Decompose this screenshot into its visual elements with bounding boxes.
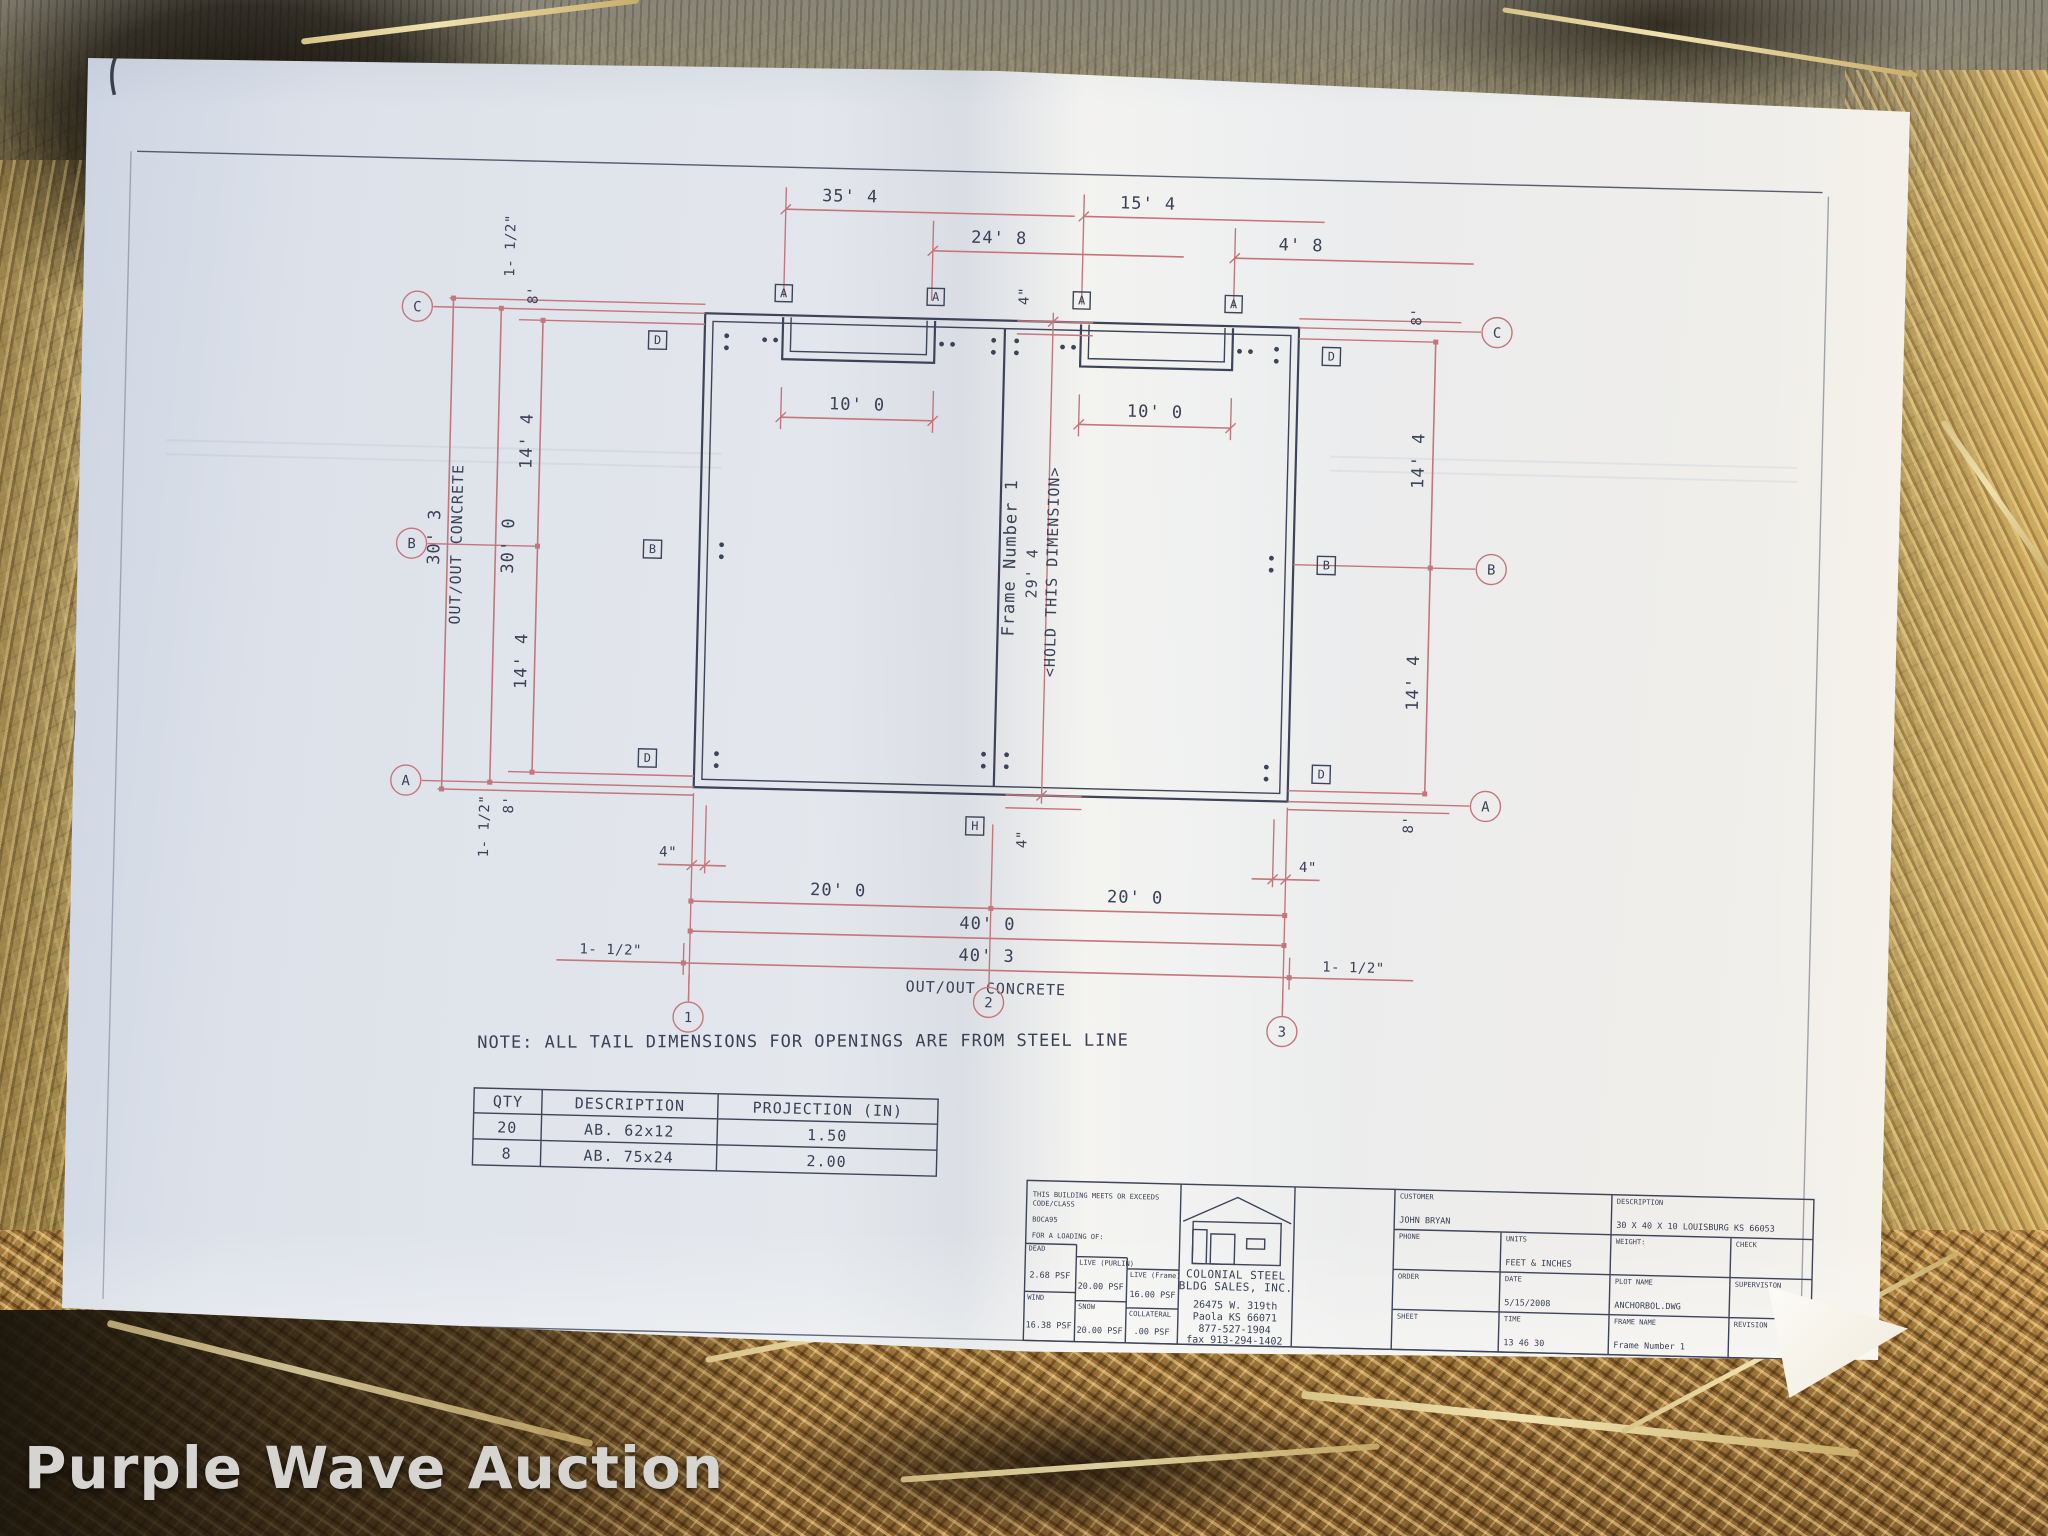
tb-phone-label: PHONE	[1399, 1232, 1420, 1241]
square-left-B: B	[649, 542, 657, 556]
right-dimensions: 8' 14' 4 14' 4 8'	[1287, 305, 1482, 835]
square-A2: A	[932, 290, 940, 304]
th-projection: PROJECTION (IN)	[752, 1099, 903, 1121]
dim-bottom-edge-right: 1- 1/2"	[1322, 960, 1385, 978]
cell-proj-1: 1.50	[807, 1126, 848, 1145]
dim-left-bay1: 14' 4	[516, 413, 537, 470]
square-left-D-top: D	[654, 333, 662, 347]
company-logo-house-icon	[1182, 1196, 1292, 1266]
cell-desc-2: AB. 75x24	[583, 1147, 674, 1167]
dim-frame-offset-top: 4"	[1017, 287, 1033, 305]
tb-time: 13 46 30	[1503, 1338, 1544, 1349]
square-A1: A	[780, 286, 788, 300]
auction-watermark: Purple Wave Auction	[24, 1434, 724, 1502]
grid-right-A: A	[1481, 799, 1490, 815]
grid-right-B: B	[1487, 562, 1496, 578]
tb-meets-2: CODE/CLASS	[1033, 1200, 1075, 1209]
dim-frame-offset-bottom: 4"	[1014, 830, 1030, 848]
dim-left-edge-bottom: 1- 1/2"	[476, 795, 494, 858]
tb-load-wind: 16.38 PSF	[1025, 1320, 1071, 1331]
tb-company-2: BLDG SALES, INC.	[1179, 1279, 1293, 1295]
frame-number-label: Frame Number 1	[998, 479, 1022, 637]
tb-check-label: CHECK	[1736, 1241, 1758, 1250]
square-right-D-bottom: D	[1317, 767, 1325, 781]
dim-bottom-offset-left: 4"	[659, 844, 677, 860]
tb-time-label: TIME	[1504, 1315, 1521, 1323]
tb-description-label: DESCRIPTION	[1617, 1198, 1664, 1207]
dim-right-bay2: 14' 4	[1403, 654, 1424, 711]
tb-plot: ANCHORBOL.DWG	[1614, 1301, 1681, 1313]
ab-schedule-table: QTY DESCRIPTION PROJECTION (IN) 20 AB. 6…	[472, 1088, 938, 1176]
bottom-dimensions: 4" 4" 20' 0 20' 0 40' 0 40' 3 1- 1/2" 1-…	[555, 790, 1417, 1020]
tb-load-dead-label: DEAD	[1028, 1244, 1045, 1252]
section-squares: A A A A D B D D B D H	[637, 281, 1342, 843]
dim-opening-left: 10' 0	[829, 394, 886, 415]
tb-sheet-label: SHEET	[1397, 1312, 1419, 1321]
title-block: THIS BUILDING MEETS OR EXCEEDS CODE/CLAS…	[1023, 1180, 1814, 1360]
tb-load-purlin-label: LIVE (PURLIN)	[1079, 1259, 1134, 1268]
tb-load-wind-label: WIND	[1027, 1293, 1044, 1301]
dim-left-end-bottom: 8'	[501, 795, 517, 813]
cell-proj-2: 2.00	[806, 1152, 847, 1171]
dim-top-4: 4' 8	[1278, 235, 1323, 256]
grid-left-B: B	[407, 536, 416, 552]
tb-units-label: UNITS	[1506, 1235, 1527, 1244]
cell-desc-1: AB. 62x12	[584, 1121, 675, 1141]
dim-left-end-top: 8'	[525, 286, 541, 304]
tb-address-2: Paola KS 66071	[1193, 1311, 1278, 1324]
dim-top-2: 24' 8	[971, 228, 1028, 249]
tb-customer-label: CUSTOMER	[1400, 1192, 1435, 1201]
tb-plot-label: PLOT NAME	[1615, 1278, 1653, 1287]
square-right-B: B	[1323, 558, 1331, 572]
dim-opening-right: 10' 0	[1127, 402, 1184, 423]
square-right-D-top: D	[1328, 349, 1336, 363]
tb-units: FEET & INCHES	[1505, 1258, 1572, 1270]
tb-customer: JOHN BRYAN	[1399, 1215, 1450, 1226]
top-dimensions: 35' 4 24' 8 15' 4 4' 8	[779, 185, 1476, 314]
tb-load-frame: 16.00 PSF	[1129, 1290, 1175, 1301]
tb-frame: Frame Number 1	[1613, 1341, 1685, 1353]
dim-right-bay1: 14' 4	[1408, 432, 1429, 489]
note-text: NOTE: ALL TAIL DIMENSIONS FOR OPENINGS A…	[477, 1031, 1129, 1053]
dim-bottom-edge-left: 1- 1/2"	[579, 941, 642, 959]
dim-left-steel: 30' 0	[498, 517, 519, 574]
grid-col-1: 1	[684, 1010, 693, 1026]
square-A3: A	[1078, 293, 1086, 307]
soil-patch	[760, 1390, 1380, 1536]
dim-bottom-offset-right: 4"	[1299, 860, 1317, 876]
square-A4: A	[1230, 297, 1238, 311]
dim-right-end-bottom: 8'	[1401, 815, 1417, 833]
tb-weight-label: WEIGHT:	[1616, 1238, 1646, 1247]
dim-bottom-concrete: 40' 3	[958, 946, 1015, 967]
cell-qty-2: 8	[501, 1145, 511, 1163]
photo-canvas: 35' 4 24' 8 15' 4 4' 8 10' 0 10' 0 4" Fr…	[0, 0, 2048, 1536]
frame-dim: 29' 4	[1022, 548, 1041, 599]
tb-fax: fax 913-294-1402	[1186, 1334, 1283, 1347]
straw-shadow-bottom-left	[0, 1310, 820, 1536]
tb-load-dead: 2.68 PSF	[1029, 1270, 1070, 1281]
tb-address-1: 26475 W. 319th	[1193, 1299, 1278, 1312]
tb-load-snow: 20.00 PSF	[1076, 1326, 1122, 1337]
grid-col-3: 3	[1277, 1024, 1286, 1040]
dim-left-edge-top: 1- 1/2"	[502, 214, 520, 277]
opening-dimensions: 10' 0 10' 0	[775, 387, 1236, 440]
tb-load-frame-label: LIVE (Frame)	[1130, 1271, 1181, 1280]
th-description: DESCRIPTION	[575, 1094, 686, 1115]
tb-load-collateral: .00 PSF	[1133, 1327, 1169, 1338]
ghost-lines	[166, 428, 1798, 494]
tb-load-snow-label: SNOW	[1078, 1303, 1096, 1311]
grid-left-C: C	[413, 299, 422, 315]
grid-col-2: 2	[984, 995, 993, 1011]
grid-left-A: A	[401, 773, 410, 789]
dim-bottom-steel: 40' 0	[959, 914, 1016, 935]
tb-loading-label: FOR A LOADING OF:	[1032, 1232, 1104, 1242]
grid-right-C: C	[1493, 326, 1502, 342]
square-H: H	[971, 819, 979, 833]
dim-bottom-bay1: 20' 0	[810, 880, 867, 901]
tb-load-collateral-label: COLLATERAL	[1129, 1310, 1171, 1319]
left-dimensions: 30' 3 OUT/OUT CONCRETE 30' 0 14' 4 14' 4…	[417, 212, 708, 862]
anchor-bolt-plan-drawing: 35' 4 24' 8 15' 4 4' 8 10' 0 10' 0 4" Fr…	[52, 30, 1883, 1374]
hold-dimension-note: <HOLD THIS DIMENSION>	[1040, 466, 1063, 677]
dim-top-3: 15' 4	[1120, 193, 1177, 214]
building-outline	[694, 313, 1299, 801]
dim-right-end-top: 8'	[1409, 308, 1425, 326]
tb-revision-label: REVISION	[1734, 1321, 1768, 1330]
tb-date-label: DATE	[1505, 1275, 1522, 1283]
tb-order-label: ORDER	[1398, 1272, 1420, 1281]
blueprint-paper: 35' 4 24' 8 15' 4 4' 8 10' 0 10' 0 4" Fr…	[0, 0, 2048, 1536]
tb-frame-label: FRAME NAME	[1614, 1318, 1656, 1327]
dim-left-concrete-label: OUT/OUT CONCRETE	[446, 464, 468, 625]
cell-qty-1: 20	[497, 1118, 517, 1136]
tb-code: BOCA95	[1032, 1216, 1057, 1225]
th-qty: QTY	[493, 1092, 524, 1111]
dim-bottom-bay2: 20' 0	[1107, 887, 1164, 908]
frame-annotations: 4" Frame Number 1 29' 4 <HOLD THIS DIMEN…	[993, 287, 1094, 850]
tb-description: 30 X 40 X 10 LOUISBURG KS 66053	[1616, 1221, 1775, 1235]
square-left-D-bottom: D	[644, 751, 652, 765]
tb-load-purlin: 20.00 PSF	[1077, 1282, 1123, 1293]
tb-date: 5/15/2008	[1504, 1298, 1550, 1309]
dim-left-bay2: 14' 4	[511, 633, 532, 690]
sheet-border	[93, 151, 1839, 1360]
dim-top-1: 35' 4	[822, 186, 879, 207]
dim-left-concrete: 30' 3	[424, 508, 445, 565]
